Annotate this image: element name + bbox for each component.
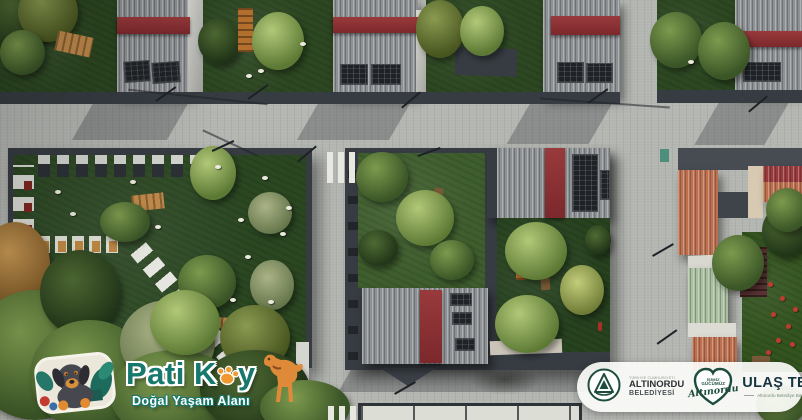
- tree: [150, 290, 220, 355]
- dog: [262, 176, 268, 180]
- solar-panel: [340, 64, 368, 85]
- tree: [252, 12, 304, 70]
- park-title: Pati Ky: [126, 358, 256, 392]
- roof-red-stripe: [545, 148, 565, 218]
- tree: [766, 188, 802, 232]
- street-wall: [657, 90, 802, 103]
- walkway: [748, 166, 763, 218]
- building-shadow: [297, 100, 412, 140]
- municipality-logo-bar: TÜRKİYE CUMHURİYETİ ALTINORDU BELEDİYESİ…: [577, 362, 802, 412]
- terracotta-roof: [678, 170, 718, 255]
- dog: [300, 42, 306, 46]
- street-lamp: [652, 243, 674, 257]
- tree: [430, 240, 474, 280]
- dog: [155, 225, 161, 229]
- tree: [650, 12, 702, 68]
- playground-ladder: [238, 8, 253, 52]
- tree: [100, 202, 150, 242]
- roof-red-ridge: [117, 17, 190, 34]
- dog: [286, 206, 292, 210]
- solar-panel: [743, 62, 781, 82]
- dog: [238, 218, 244, 222]
- flower-bush: [790, 342, 795, 347]
- roof-red-stripe: [420, 290, 442, 363]
- mayor-name: ULAŞ TEPE: [742, 376, 802, 392]
- tree: [248, 192, 292, 234]
- tree: [0, 30, 45, 75]
- roof-red-ridge: [551, 16, 620, 35]
- dog: [258, 69, 264, 73]
- altinordu-seal-icon: [587, 368, 621, 407]
- building-shadow: [72, 100, 190, 140]
- flower-bush: [776, 338, 781, 343]
- mayor-title: Altınordu Belediye Başkanı: [742, 393, 802, 398]
- solar-panel: [123, 60, 150, 83]
- flower-bush: [766, 350, 771, 355]
- flat-roof: [718, 192, 748, 218]
- dog: [55, 190, 61, 194]
- tree: [198, 18, 240, 64]
- aerial-render-scene: Pati Ky Doğal Yaşam Alanı TÜRKİYE CUMHUR…: [0, 0, 802, 420]
- flower-bush: [771, 312, 776, 317]
- orange-dog-icon: [258, 348, 306, 415]
- tree: [712, 235, 764, 291]
- building-shadow: [507, 100, 614, 144]
- tree: [585, 225, 611, 255]
- dog: [688, 60, 694, 64]
- dog: [230, 298, 236, 302]
- dog: [268, 300, 274, 304]
- solar-panel: [600, 170, 610, 200]
- red-roof: [763, 166, 802, 182]
- tree: [495, 295, 559, 353]
- dog: [215, 165, 221, 169]
- solar-panel: [450, 293, 472, 306]
- roof-red-ridge: [333, 17, 418, 33]
- kennel-row: [38, 164, 198, 177]
- tree: [416, 0, 464, 58]
- flower-bush: [793, 307, 798, 312]
- dog: [70, 212, 76, 216]
- wall-shadow-point: [380, 368, 436, 386]
- tree: [356, 152, 408, 202]
- pati-koy-dog-mascot-icon: [28, 352, 122, 419]
- wall-posts: [348, 160, 358, 360]
- flower-bush: [768, 282, 773, 287]
- dog: [130, 180, 136, 184]
- park-subtitle: Doğal Yaşam Alanı: [132, 395, 256, 408]
- tree: [505, 222, 567, 280]
- trash-bin: [660, 149, 669, 162]
- solar-panel: [557, 62, 584, 83]
- slogan-heart-icon: İŞİMİZ GÜCÜMÜZ Altınordu: [692, 366, 734, 408]
- kennel-row-roofs: [38, 155, 198, 164]
- roof-edge: [487, 148, 497, 218]
- tree: [358, 230, 398, 266]
- tree: [460, 6, 504, 56]
- dog: [245, 255, 251, 259]
- slogan-text: İŞİMİZ GÜCÜMÜZ Altınordu: [692, 366, 734, 408]
- dog: [246, 74, 252, 78]
- person: [598, 322, 602, 331]
- pati-koy-logo: Pati Ky Doğal Yaşam Alanı: [28, 352, 256, 419]
- mayor-name-block: ULAŞ TEPE Altınordu Belediye Başkanı: [742, 376, 802, 399]
- solar-panel: [452, 312, 472, 325]
- crosswalk: [328, 406, 357, 420]
- solar-panel: [151, 61, 180, 84]
- street-lamp: [657, 329, 678, 344]
- tree: [190, 146, 236, 200]
- solar-panel: [455, 338, 475, 351]
- building-shadow: [694, 97, 792, 145]
- solar-panel: [371, 64, 401, 85]
- canopy-roof: [361, 406, 579, 420]
- street-wall: [0, 92, 620, 104]
- dog: [280, 232, 286, 236]
- solar-panel: [572, 154, 598, 212]
- tree: [698, 22, 750, 80]
- solar-panel: [586, 63, 613, 83]
- tree: [396, 190, 454, 246]
- tree: [560, 265, 604, 315]
- crosswalk: [327, 152, 358, 183]
- flower-bush: [786, 324, 791, 329]
- municipality-name: TÜRKİYE CUMHURİYETİ ALTINORDU BELEDİYESİ: [629, 377, 684, 398]
- paw-icon: [212, 359, 242, 394]
- roof-trim: [688, 323, 736, 337]
- flower-bush: [780, 296, 785, 301]
